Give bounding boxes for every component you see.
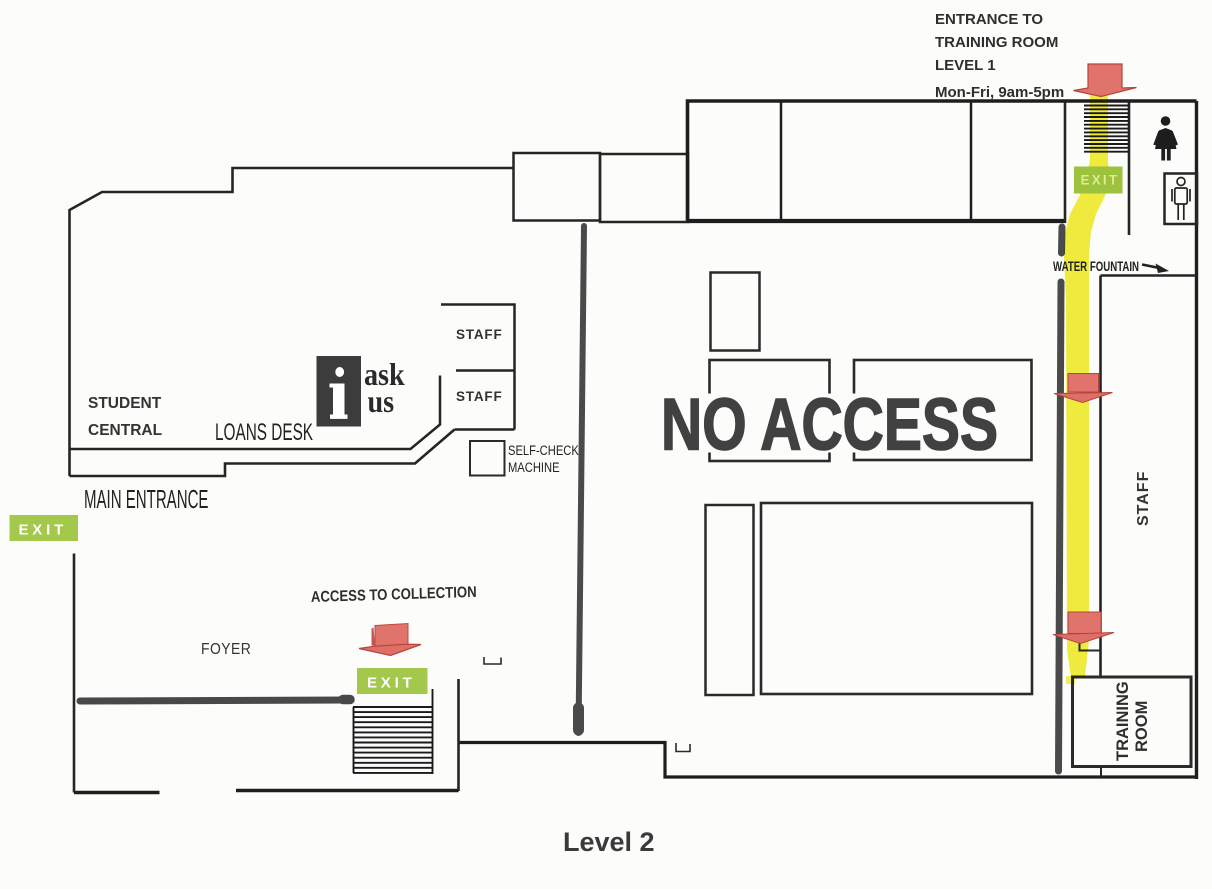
svg-text:NO ACCESS: NO ACCESS xyxy=(661,385,998,466)
svg-text:TRAINING: TRAINING xyxy=(1114,681,1132,761)
svg-text:ENTRANCE TO: ENTRANCE TO xyxy=(935,11,1043,28)
svg-text:STAFF: STAFF xyxy=(456,327,503,342)
svg-text:FOYER: FOYER xyxy=(201,641,251,658)
svg-text:CENTRAL: CENTRAL xyxy=(88,422,162,439)
svg-text:Mon-Fri, 9am-5pm: Mon-Fri, 9am-5pm xyxy=(935,84,1064,101)
svg-text:EXIT: EXIT xyxy=(1081,173,1120,188)
svg-text:LOANS DESK: LOANS DESK xyxy=(215,420,313,446)
svg-text:MAIN ENTRANCE: MAIN ENTRANCE xyxy=(84,486,208,514)
svg-text:TRAINING ROOM: TRAINING ROOM xyxy=(935,34,1058,51)
svg-text:EXIT: EXIT xyxy=(367,675,416,692)
svg-text:MACHINE: MACHINE xyxy=(508,460,560,475)
svg-text:WATER FOUNTAIN: WATER FOUNTAIN xyxy=(1053,259,1139,274)
svg-text:ROOM: ROOM xyxy=(1133,701,1151,752)
svg-text:SELF-CHECK: SELF-CHECK xyxy=(508,443,579,458)
svg-text:STAFF: STAFF xyxy=(1135,471,1152,526)
svg-text:us: us xyxy=(368,383,395,419)
svg-text:Level 2: Level 2 xyxy=(563,827,655,857)
svg-text:LEVEL 1: LEVEL 1 xyxy=(935,57,996,74)
svg-text:EXIT: EXIT xyxy=(19,522,68,539)
svg-text:STUDENT: STUDENT xyxy=(88,395,162,412)
svg-text:STAFF: STAFF xyxy=(456,389,503,404)
